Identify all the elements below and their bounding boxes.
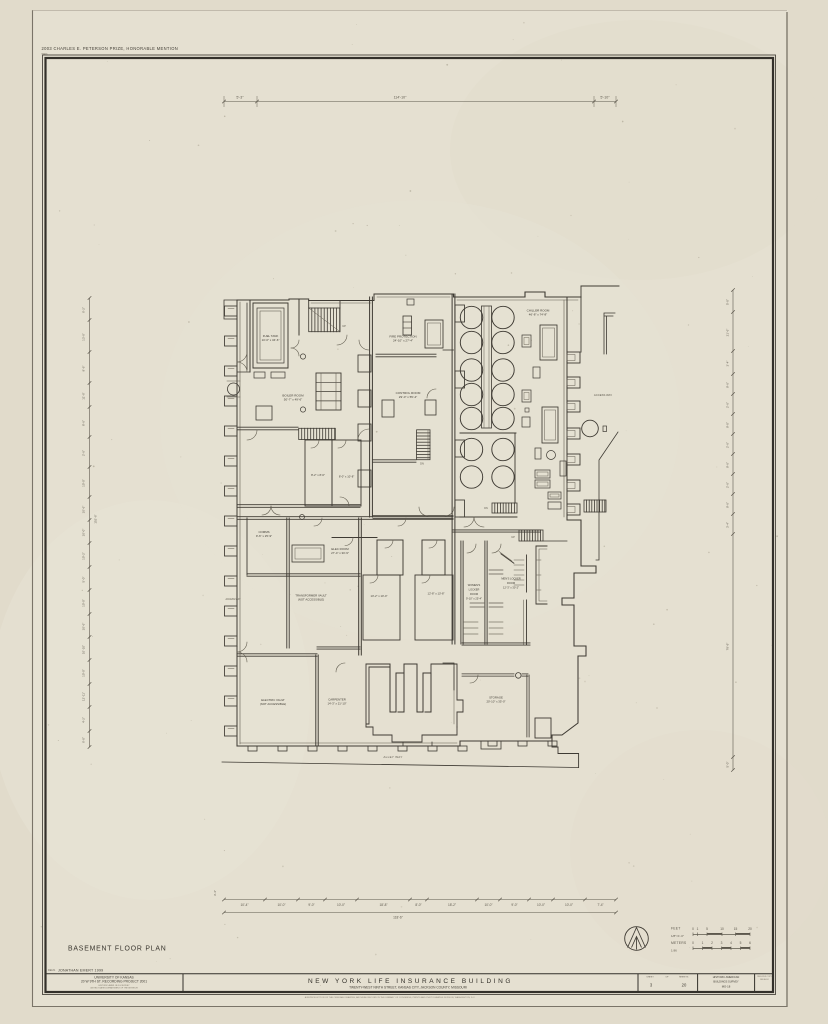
svg-text:UP: UP: [342, 324, 346, 328]
svg-text:10'-0": 10'-0": [277, 903, 285, 907]
svg-text:UNIVERSITY OF KANSAS: UNIVERSITY OF KANSAS: [94, 976, 134, 980]
svg-text:20'-10" x 35'-0": 20'-10" x 35'-0": [486, 699, 505, 703]
svg-text:(NOT ACCESSIBLE): (NOT ACCESSIBLE): [260, 702, 286, 706]
svg-text:14'-3" x 21'-10": 14'-3" x 21'-10": [327, 701, 346, 705]
svg-text:9'-6": 9'-6": [726, 462, 730, 468]
svg-text:2'-6": 2'-6": [726, 402, 730, 408]
svg-text:5: 5: [706, 927, 708, 931]
svg-text:0: 0: [692, 941, 694, 945]
svg-text:2'-6": 2'-6": [726, 442, 730, 448]
svg-text:10: 10: [720, 927, 724, 931]
svg-text:9'-6": 9'-6": [726, 382, 730, 388]
svg-text:2: 2: [711, 941, 713, 945]
svg-text:9'-6" x 25'-9": 9'-6" x 25'-9": [256, 534, 272, 538]
svg-text:10'-4": 10'-4": [240, 903, 248, 907]
svg-text:ALLEY WAY: ALLEY WAY: [383, 755, 402, 759]
svg-text:FEET: FEET: [671, 927, 680, 931]
svg-text:1: 1: [702, 941, 704, 945]
svg-text:8'-6": 8'-6": [82, 420, 86, 426]
svg-text:NEW YORK LIFE INSURANCE BUILDI: NEW YORK LIFE INSURANCE BUILDING: [308, 978, 513, 985]
svg-text:5'-0": 5'-0": [726, 762, 730, 768]
svg-text:10'-0" x 34'-6": 10'-0" x 34'-6": [262, 338, 280, 342]
svg-text:10'-0": 10'-0": [82, 529, 86, 537]
svg-text:5'-0": 5'-0": [726, 299, 730, 305]
svg-text:20: 20: [748, 927, 752, 931]
svg-text:153'-6": 153'-6": [94, 514, 98, 523]
svg-text:5'-3": 5'-3": [236, 96, 244, 100]
svg-text:10'-0": 10'-0": [82, 669, 86, 677]
svg-text:3'-4": 3'-4": [726, 361, 730, 367]
svg-text:8'-2" x 8'-6": 8'-2" x 8'-6": [311, 473, 325, 477]
svg-text:8'-0": 8'-0": [415, 903, 421, 907]
svg-text:10'-0": 10'-0": [337, 903, 345, 907]
svg-text:5: 5: [740, 941, 742, 945]
svg-text:UP: UP: [511, 535, 515, 539]
svg-text:21'-6": 21'-6": [726, 329, 730, 337]
svg-text:10'-6": 10'-6": [82, 506, 86, 514]
svg-text:MO-18: MO-18: [722, 985, 731, 989]
svg-text:1: 1: [697, 927, 699, 931]
svg-text:5'-10": 5'-10": [600, 96, 610, 100]
svg-text:29'-0" x 55'-4": 29'-0" x 55'-4": [399, 395, 417, 399]
svg-text:9'-10" x 25'-4": 9'-10" x 25'-4": [466, 597, 482, 601]
svg-text:9'-0": 9'-0": [511, 903, 517, 907]
svg-text:4'-2": 4'-2": [82, 717, 86, 723]
svg-text:20 W 9TH ST. RECORDING PROJECT: 20 W 9TH ST. RECORDING PROJECT 2001: [81, 980, 147, 984]
svg-text:2'-6": 2'-6": [726, 482, 730, 488]
svg-text:CHILLER ROOM: CHILLER ROOM: [527, 309, 550, 313]
svg-text:BOILER ROOM: BOILER ROOM: [282, 394, 304, 398]
svg-text:10'-0": 10'-0": [537, 903, 545, 907]
svg-text:SHEETS: SHEETS: [680, 976, 689, 978]
svg-text:HISTORIC AMERICAN: HISTORIC AMERICAN: [713, 975, 740, 979]
svg-text:0: 0: [692, 927, 694, 931]
svg-text:METERS: METERS: [671, 941, 687, 945]
svg-text:9'-0": 9'-0": [308, 903, 314, 907]
svg-text:ACCESS WAY: ACCESS WAY: [594, 393, 612, 397]
svg-text:8'-0" x 10'-8": 8'-0" x 10'-8": [339, 475, 354, 479]
svg-text:10'-0": 10'-0": [82, 599, 86, 607]
svg-text:ELEC ROOM: ELEC ROOM: [331, 547, 349, 551]
svg-text:TWENTY-WEST NINTH STREET, KAN: TWENTY-WEST NINTH STREET, KANSAS CITY, J…: [349, 985, 467, 989]
svg-text:11'-6": 11'-6": [82, 392, 86, 399]
svg-text:BUILDINGS SURVEY: BUILDINGS SURVEY: [713, 979, 739, 983]
svg-text:18'-2": 18'-2": [448, 903, 456, 907]
svg-text:JONATHAN EMERT 1999: JONATHAN EMERT 1999: [58, 969, 103, 973]
svg-text:12'-11": 12'-11": [82, 692, 86, 701]
svg-text:10'-10": 10'-10": [82, 645, 86, 654]
svg-text:ROOM: ROOM: [507, 581, 515, 585]
svg-text:SHEET: SHEET: [646, 976, 654, 978]
svg-text:10'-0": 10'-0": [565, 903, 573, 907]
svg-text:DELIN.: DELIN.: [48, 969, 56, 972]
svg-text:4: 4: [730, 941, 732, 945]
svg-text:10'-6": 10'-6": [82, 623, 86, 631]
svg-text:6'-2": 6'-2": [82, 307, 86, 313]
svg-text:CONTROL ROOM: CONTROL ROOM: [396, 391, 421, 395]
svg-text:3: 3: [721, 941, 723, 945]
svg-text:20: 20: [682, 983, 687, 988]
svg-text:9'-0": 9'-0": [726, 422, 730, 428]
svg-text:10'-0": 10'-0": [82, 479, 86, 487]
svg-text:COMMS: COMMS: [258, 530, 269, 534]
svg-text:12'-3" x 30'-2": 12'-3" x 30'-2": [503, 586, 519, 590]
svg-text:10'-2": 10'-2": [82, 552, 86, 560]
svg-text:(NOT ACCESSIBLE): (NOT ACCESSIBLE): [298, 597, 324, 601]
svg-text:FUEL TANK: FUEL TANK: [263, 334, 279, 338]
svg-text:27'-4" x 30'-9": 27'-4" x 30'-9": [331, 551, 349, 555]
svg-text:7'-4": 7'-4": [597, 903, 603, 907]
svg-text:3'-4": 3'-4": [213, 890, 217, 896]
svg-text:46'-8" x 74'-8": 46'-8" x 74'-8": [529, 313, 547, 317]
svg-text:118'-6": 118'-6": [393, 916, 403, 920]
svg-text:DN: DN: [420, 462, 424, 466]
svg-text:REDUCED COPY: REDUCED COPY: [757, 976, 772, 978]
svg-text:24'-10" x 27'-4": 24'-10" x 27'-4": [393, 339, 413, 343]
svg-text:10'-2" x 10'-0": 10'-2" x 10'-0": [371, 594, 388, 598]
svg-text:15: 15: [734, 927, 738, 931]
svg-text:114'-10": 114'-10": [394, 96, 408, 100]
svg-text:2003 CHARLES E. PETERSON PRIZE: 2003 CHARLES E. PETERSON PRIZE, HONORABL…: [42, 46, 179, 51]
svg-text:10'-0": 10'-0": [484, 903, 492, 907]
svg-text:5'-0": 5'-0": [82, 577, 86, 583]
svg-text:6'-0": 6'-0": [82, 737, 86, 743]
svg-text:LOCKER: LOCKER: [469, 588, 480, 592]
svg-text:9'-6": 9'-6": [82, 366, 86, 372]
svg-text:50'-7" x 49'-6": 50'-7" x 49'-6": [284, 398, 302, 402]
svg-text:2'-6": 2'-6": [82, 450, 86, 456]
svg-text:12'-8" x 13'-8": 12'-8" x 13'-8": [428, 592, 445, 596]
svg-text:BASEMENT FLOOR PLAN: BASEMENT FLOOR PLAN: [68, 946, 167, 953]
svg-text:1:96: 1:96: [671, 949, 677, 953]
svg-text:9'-6": 9'-6": [726, 502, 730, 508]
svg-text:18'-8": 18'-8": [379, 903, 387, 907]
svg-text:3'-4": 3'-4": [726, 522, 730, 528]
svg-text:WOMEN'S: WOMEN'S: [468, 583, 481, 587]
svg-text:ROOM: ROOM: [470, 592, 478, 596]
svg-text:DN: DN: [484, 507, 488, 510]
svg-text:1/8"=1'-0": 1/8"=1'-0": [671, 934, 684, 938]
svg-text:78'-9": 78'-9": [726, 643, 730, 651]
svg-text:6: 6: [749, 941, 751, 945]
svg-text:13'-6": 13'-6": [82, 333, 86, 341]
